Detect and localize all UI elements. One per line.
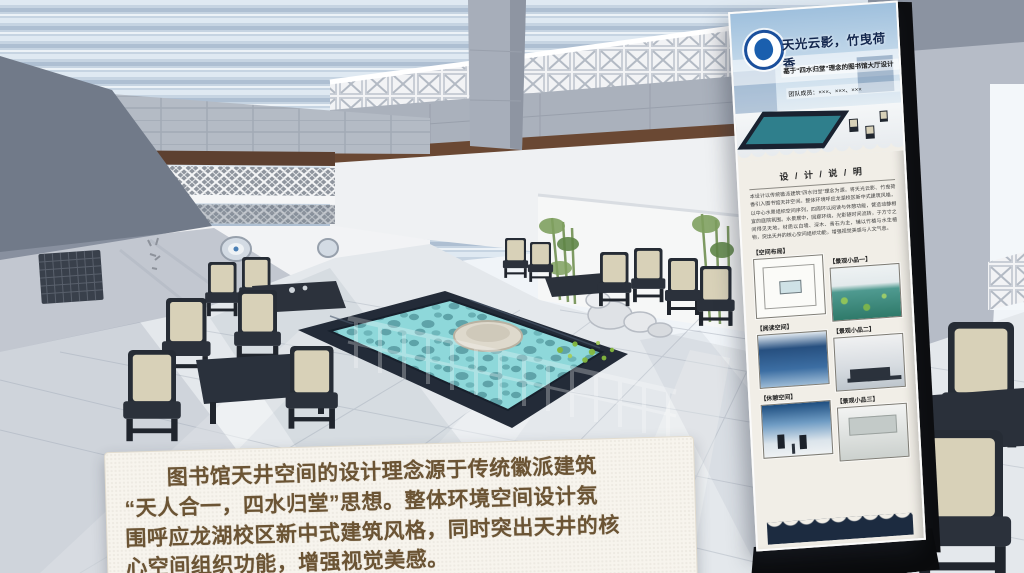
gallery-item: 【景观小品三】 xyxy=(836,391,909,461)
thumbnail-landscape-1 xyxy=(830,262,903,321)
thumbnail-landscape-2 xyxy=(833,332,906,391)
gallery-item: 【休憩空间】 xyxy=(760,389,833,459)
gallery-item: 【阅读空间】 xyxy=(756,319,829,389)
thumbnail-rest-space xyxy=(761,400,834,459)
poster-body: 设 / 计 / 说 / 明 本设计以传统徽派建筑“四水归堂”理念为源，将天光云影… xyxy=(738,150,924,549)
hero-chair xyxy=(865,125,875,139)
hero-chair xyxy=(879,110,888,122)
gallery-column-left: 【空间布局】 【阅读空间】 【休憩空间】 xyxy=(752,243,836,519)
exhibit-standee[interactable]: 天光云影，竹曳荷香 基于“四水归堂”理念的图书馆大厅设计 团队成员：×××、××… xyxy=(728,0,926,551)
thumbnail-reading-space xyxy=(757,330,830,389)
poster-face: 天光云影，竹曳荷香 基于“四水归堂”理念的图书馆大厅设计 团队成员：×××、××… xyxy=(728,0,926,551)
thumbnail-landscape-3 xyxy=(837,402,910,461)
poster-hero-image: 天光云影，竹曳荷香 基于“四水归堂”理念的图书馆大厅设计 团队成员：×××、××… xyxy=(730,3,903,162)
poster-team-line: 团队成员：×××、×××、××× xyxy=(786,80,902,99)
caption-panel: 图书馆天井空间的设计理念源于传统徽派建筑 “天人合一，四水归堂”思想。整体环境空… xyxy=(104,436,698,573)
poster-gallery: 【空间布局】 【阅读空间】 【休憩空间】 xyxy=(752,237,912,518)
design-notes-text: 本设计以传统徽派建筑“四水归堂”理念为源，将天光云影、竹曳荷香引入图书馆天井空间… xyxy=(750,183,898,243)
gallery-item: 【景观小品一】 xyxy=(829,251,902,321)
virtual-tour-viewport: 天光云影，竹曳荷香 基于“四水归堂”理念的图书馆大厅设计 团队成员：×××、××… xyxy=(0,0,1024,573)
gallery-item: 【景观小品二】 xyxy=(833,321,906,391)
thumbnail-floorplan xyxy=(753,254,826,319)
concrete-pillar xyxy=(468,0,526,150)
caption-text: 图书馆天井空间的设计理念源于传统徽派建筑 “天人合一，四水归堂”思想。整体环境空… xyxy=(123,449,678,573)
gallery-column-right: 【景观小品一】 【景观小品二】 【景观小品三】 xyxy=(829,251,912,513)
hero-chair xyxy=(849,118,859,132)
wave-band xyxy=(767,513,914,545)
gallery-item: 【空间布局】 xyxy=(752,243,826,319)
far-right-balustrade xyxy=(988,252,1024,310)
